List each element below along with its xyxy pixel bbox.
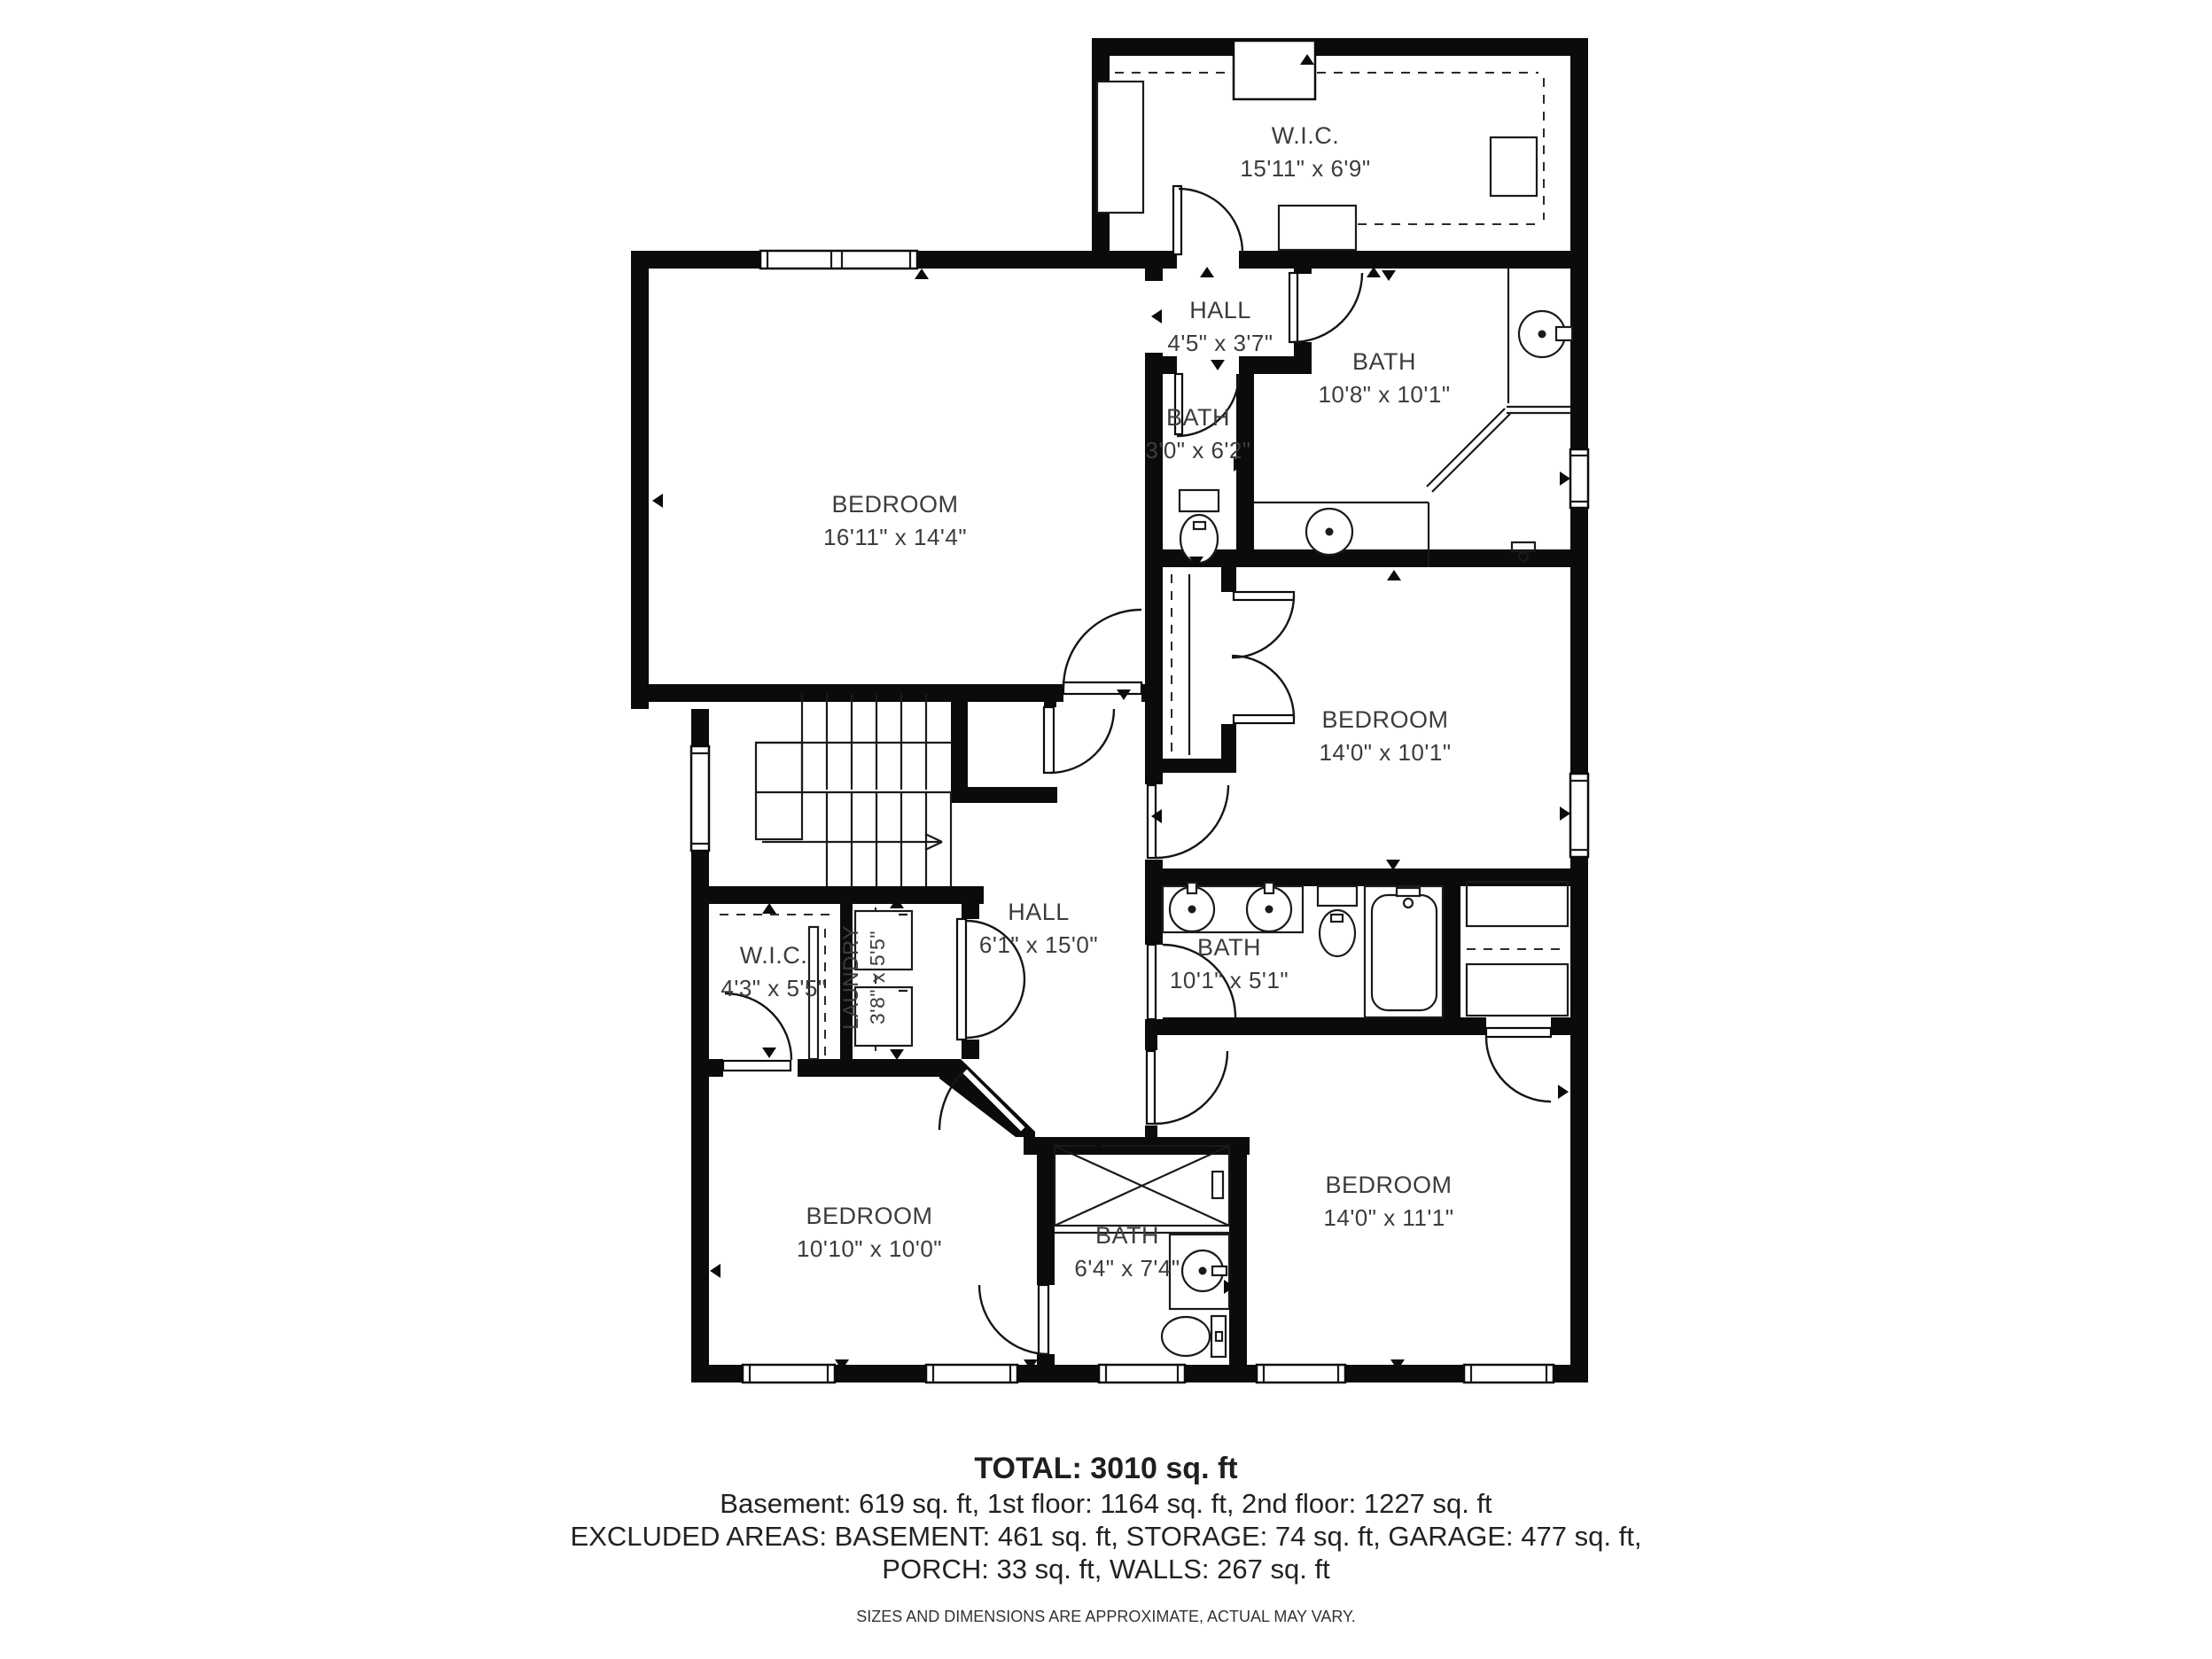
room-dims: 16'11" x 14'4": [823, 521, 967, 553]
room-dims: 4'5" x 3'7": [1167, 327, 1273, 359]
door-closet-bedroom-right-1: [1232, 592, 1294, 658]
room-name: W.I.C.: [720, 939, 826, 972]
room-dims: 3'8" x 5'5": [865, 925, 890, 1030]
sink-icon-bath-upper-right: [1519, 311, 1572, 357]
door-closet-bedroom-right-2: [1232, 656, 1294, 723]
bathtub-icon: [1365, 886, 1443, 1017]
room-label-bedroom-master: BEDROOM 16'11" x 14'4": [823, 487, 967, 553]
area-summary: TOTAL: 3010 sq. ft Basement: 619 sq. ft,…: [0, 1450, 2212, 1626]
room-name: BATH: [1170, 931, 1289, 964]
door-master-bedroom: [1063, 610, 1141, 694]
wic-shelf-bottom: [1279, 206, 1356, 250]
room-name: BEDROOM: [823, 487, 967, 521]
window-master-top: [760, 251, 917, 269]
wic-shelf-right: [1491, 137, 1537, 196]
room-label-laundry: LAUNDRY 3'8" x 5'5": [838, 925, 890, 1030]
room-name: BEDROOM: [1323, 1168, 1453, 1202]
room-dims: 6'4" x 7'4": [1074, 1252, 1180, 1284]
door-wic-top: [1173, 186, 1242, 254]
room-dims: 4'3" x 5'5": [720, 972, 826, 1004]
shower-icon-bath-upper: [1427, 407, 1570, 561]
door-bath-ensuite: [979, 1285, 1048, 1354]
room-name: BEDROOM: [797, 1199, 942, 1233]
window-bl-1: [743, 1365, 835, 1382]
room-label-hall-main: HALL 6'1" x 15'0": [979, 895, 1098, 961]
floor-plan-drawing: [0, 0, 2212, 1418]
room-label-wic-small: W.I.C. 4'3" x 5'5": [720, 939, 826, 1004]
excluded-areas-text-2: PORCH: 33 sq. ft, WALLS: 267 sq. ft: [0, 1553, 2212, 1585]
room-label-bedroom-bottom-right: BEDROOM 14'0" x 11'1": [1323, 1168, 1453, 1234]
toilet-icon-bath-small: [1180, 490, 1219, 563]
door-hall-upper-to-bath: [1289, 273, 1362, 342]
room-name: HALL: [1167, 293, 1273, 327]
window-stairs-left: [691, 746, 709, 851]
door-wic-small: [723, 993, 791, 1071]
staircase: [756, 694, 951, 886]
room-label-bedroom-right: BEDROOM 14'0" x 10'1": [1319, 703, 1451, 768]
window-bath-ensuite: [1099, 1365, 1185, 1382]
room-dims: 3'0" x 6'2": [1145, 434, 1250, 466]
room-label-bath-ensuite: BATH 6'4" x 7'4": [1074, 1219, 1180, 1284]
sink-icon-bath-hall-2: [1247, 883, 1291, 931]
room-name: BATH: [1074, 1219, 1180, 1252]
wic-shelf-left: [1097, 82, 1143, 213]
wic-shelf-top: [1234, 41, 1315, 99]
toilet-icon-bath-hall: [1318, 886, 1357, 956]
room-name: BEDROOM: [1319, 703, 1451, 736]
room-name: W.I.C.: [1240, 119, 1370, 152]
window-bedroom-right: [1570, 774, 1588, 857]
room-label-bath-upper: BATH 10'8" x 10'1": [1318, 345, 1450, 410]
room-dims: 14'0" x 11'1": [1323, 1202, 1453, 1234]
door-stairs-closet: [1044, 707, 1114, 773]
window-bl-2: [926, 1365, 1017, 1382]
room-label-bath-small: BATH 3'0" x 6'2": [1145, 401, 1250, 466]
door-bedroom-br: [1147, 1051, 1227, 1124]
room-name: BATH: [1145, 401, 1250, 434]
sink-icon-bath-hall-1: [1170, 883, 1214, 931]
window-br-2: [1464, 1365, 1554, 1382]
room-name: BATH: [1318, 345, 1450, 378]
toilet-icon-bath-ensuite: [1162, 1316, 1226, 1357]
room-dims: 10'1" x 5'1": [1170, 964, 1289, 996]
total-area-text: TOTAL: 3010 sq. ft: [0, 1450, 2212, 1487]
window-br-1: [1257, 1365, 1345, 1382]
floor-plan-page: W.I.C. 15'11" x 6'9" HALL 4'5" x 3'7" BA…: [0, 0, 2212, 1659]
room-dims: 6'1" x 15'0": [979, 929, 1098, 961]
door-closet-bedroom-br: [1486, 1028, 1551, 1102]
room-label-wic-top: W.I.C. 15'11" x 6'9": [1240, 119, 1370, 184]
room-dims: 10'10" x 10'0": [797, 1233, 942, 1265]
room-label-bath-hall: BATH 10'1" x 5'1": [1170, 931, 1289, 996]
linen-shelf-bottom: [1467, 964, 1568, 1016]
room-label-hall-upper: HALL 4'5" x 3'7": [1167, 293, 1273, 359]
room-dims: 14'0" x 10'1": [1319, 736, 1451, 768]
window-bath-right: [1570, 449, 1588, 508]
room-name: LAUNDRY: [838, 925, 865, 1030]
disclaimer-text: SIZES AND DIMENSIONS ARE APPROXIMATE, AC…: [0, 1607, 2212, 1626]
excluded-areas-text-1: EXCLUDED AREAS: BASEMENT: 461 sq. ft, ST…: [0, 1520, 2212, 1553]
room-dims: 10'8" x 10'1": [1318, 378, 1450, 410]
room-dims: 15'11" x 6'9": [1240, 152, 1370, 184]
room-label-bedroom-bottom-left: BEDROOM 10'10" x 10'0": [797, 1199, 942, 1265]
floor-areas-text: Basement: 619 sq. ft, 1st floor: 1164 sq…: [0, 1487, 2212, 1520]
sink-icon-bath-upper-bottom: [1306, 509, 1352, 555]
linen-shelf-top: [1467, 882, 1568, 926]
room-name: HALL: [979, 895, 1098, 929]
